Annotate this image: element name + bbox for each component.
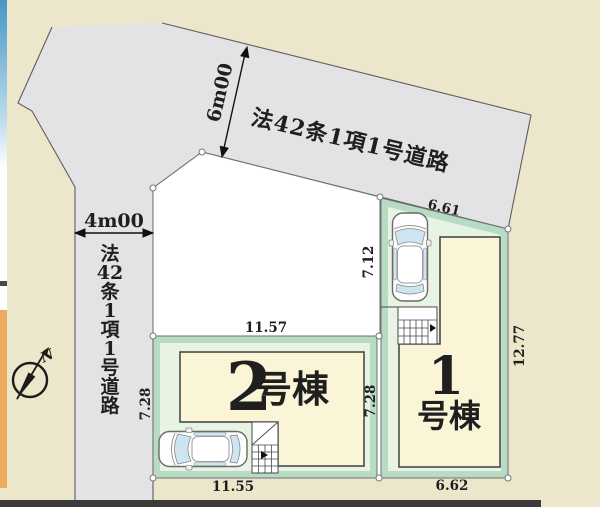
site-plan-page: 法42条1項1号道路 6m00 4m00 法 42 条 1 項 1 号 道 路 … bbox=[0, 0, 600, 507]
left-road-label: 法 42 条 1 項 1 号 道 路 bbox=[97, 242, 123, 417]
dim-lot1-left: 7.12 bbox=[361, 246, 377, 279]
dim-lot2-bottom: 11.55 bbox=[212, 479, 254, 495]
lot-1 bbox=[381, 198, 508, 478]
stairs-icon bbox=[398, 307, 437, 344]
page-edge-strip bbox=[0, 0, 7, 488]
svg-text:路: 路 bbox=[100, 394, 120, 417]
bottom-bar bbox=[0, 500, 541, 507]
stairs-icon bbox=[252, 422, 278, 473]
dim-lot1-bottom: 6.62 bbox=[436, 478, 469, 494]
car-icon bbox=[389, 213, 431, 301]
left-road-width-label: 4m00 bbox=[84, 210, 144, 232]
edge-strip-blue bbox=[0, 0, 7, 170]
dim-lot2-top: 11.57 bbox=[245, 320, 287, 336]
edge-strip-tick bbox=[0, 281, 7, 286]
svg-text:号棟: 号棟 bbox=[417, 397, 482, 435]
car-icon bbox=[159, 428, 247, 470]
edge-strip-white bbox=[0, 170, 7, 310]
dim-lot2-left: 7.28 bbox=[138, 388, 154, 421]
edge-strip-orange bbox=[0, 310, 7, 488]
dim-lot2-right: 7.28 bbox=[363, 385, 379, 418]
dim-lot1-right: 12.77 bbox=[512, 325, 528, 367]
site-plan-drawing: 法42条1項1号道路 6m00 4m00 法 42 条 1 項 1 号 道 路 … bbox=[0, 0, 600, 507]
svg-text:号棟: 号棟 bbox=[255, 367, 330, 411]
